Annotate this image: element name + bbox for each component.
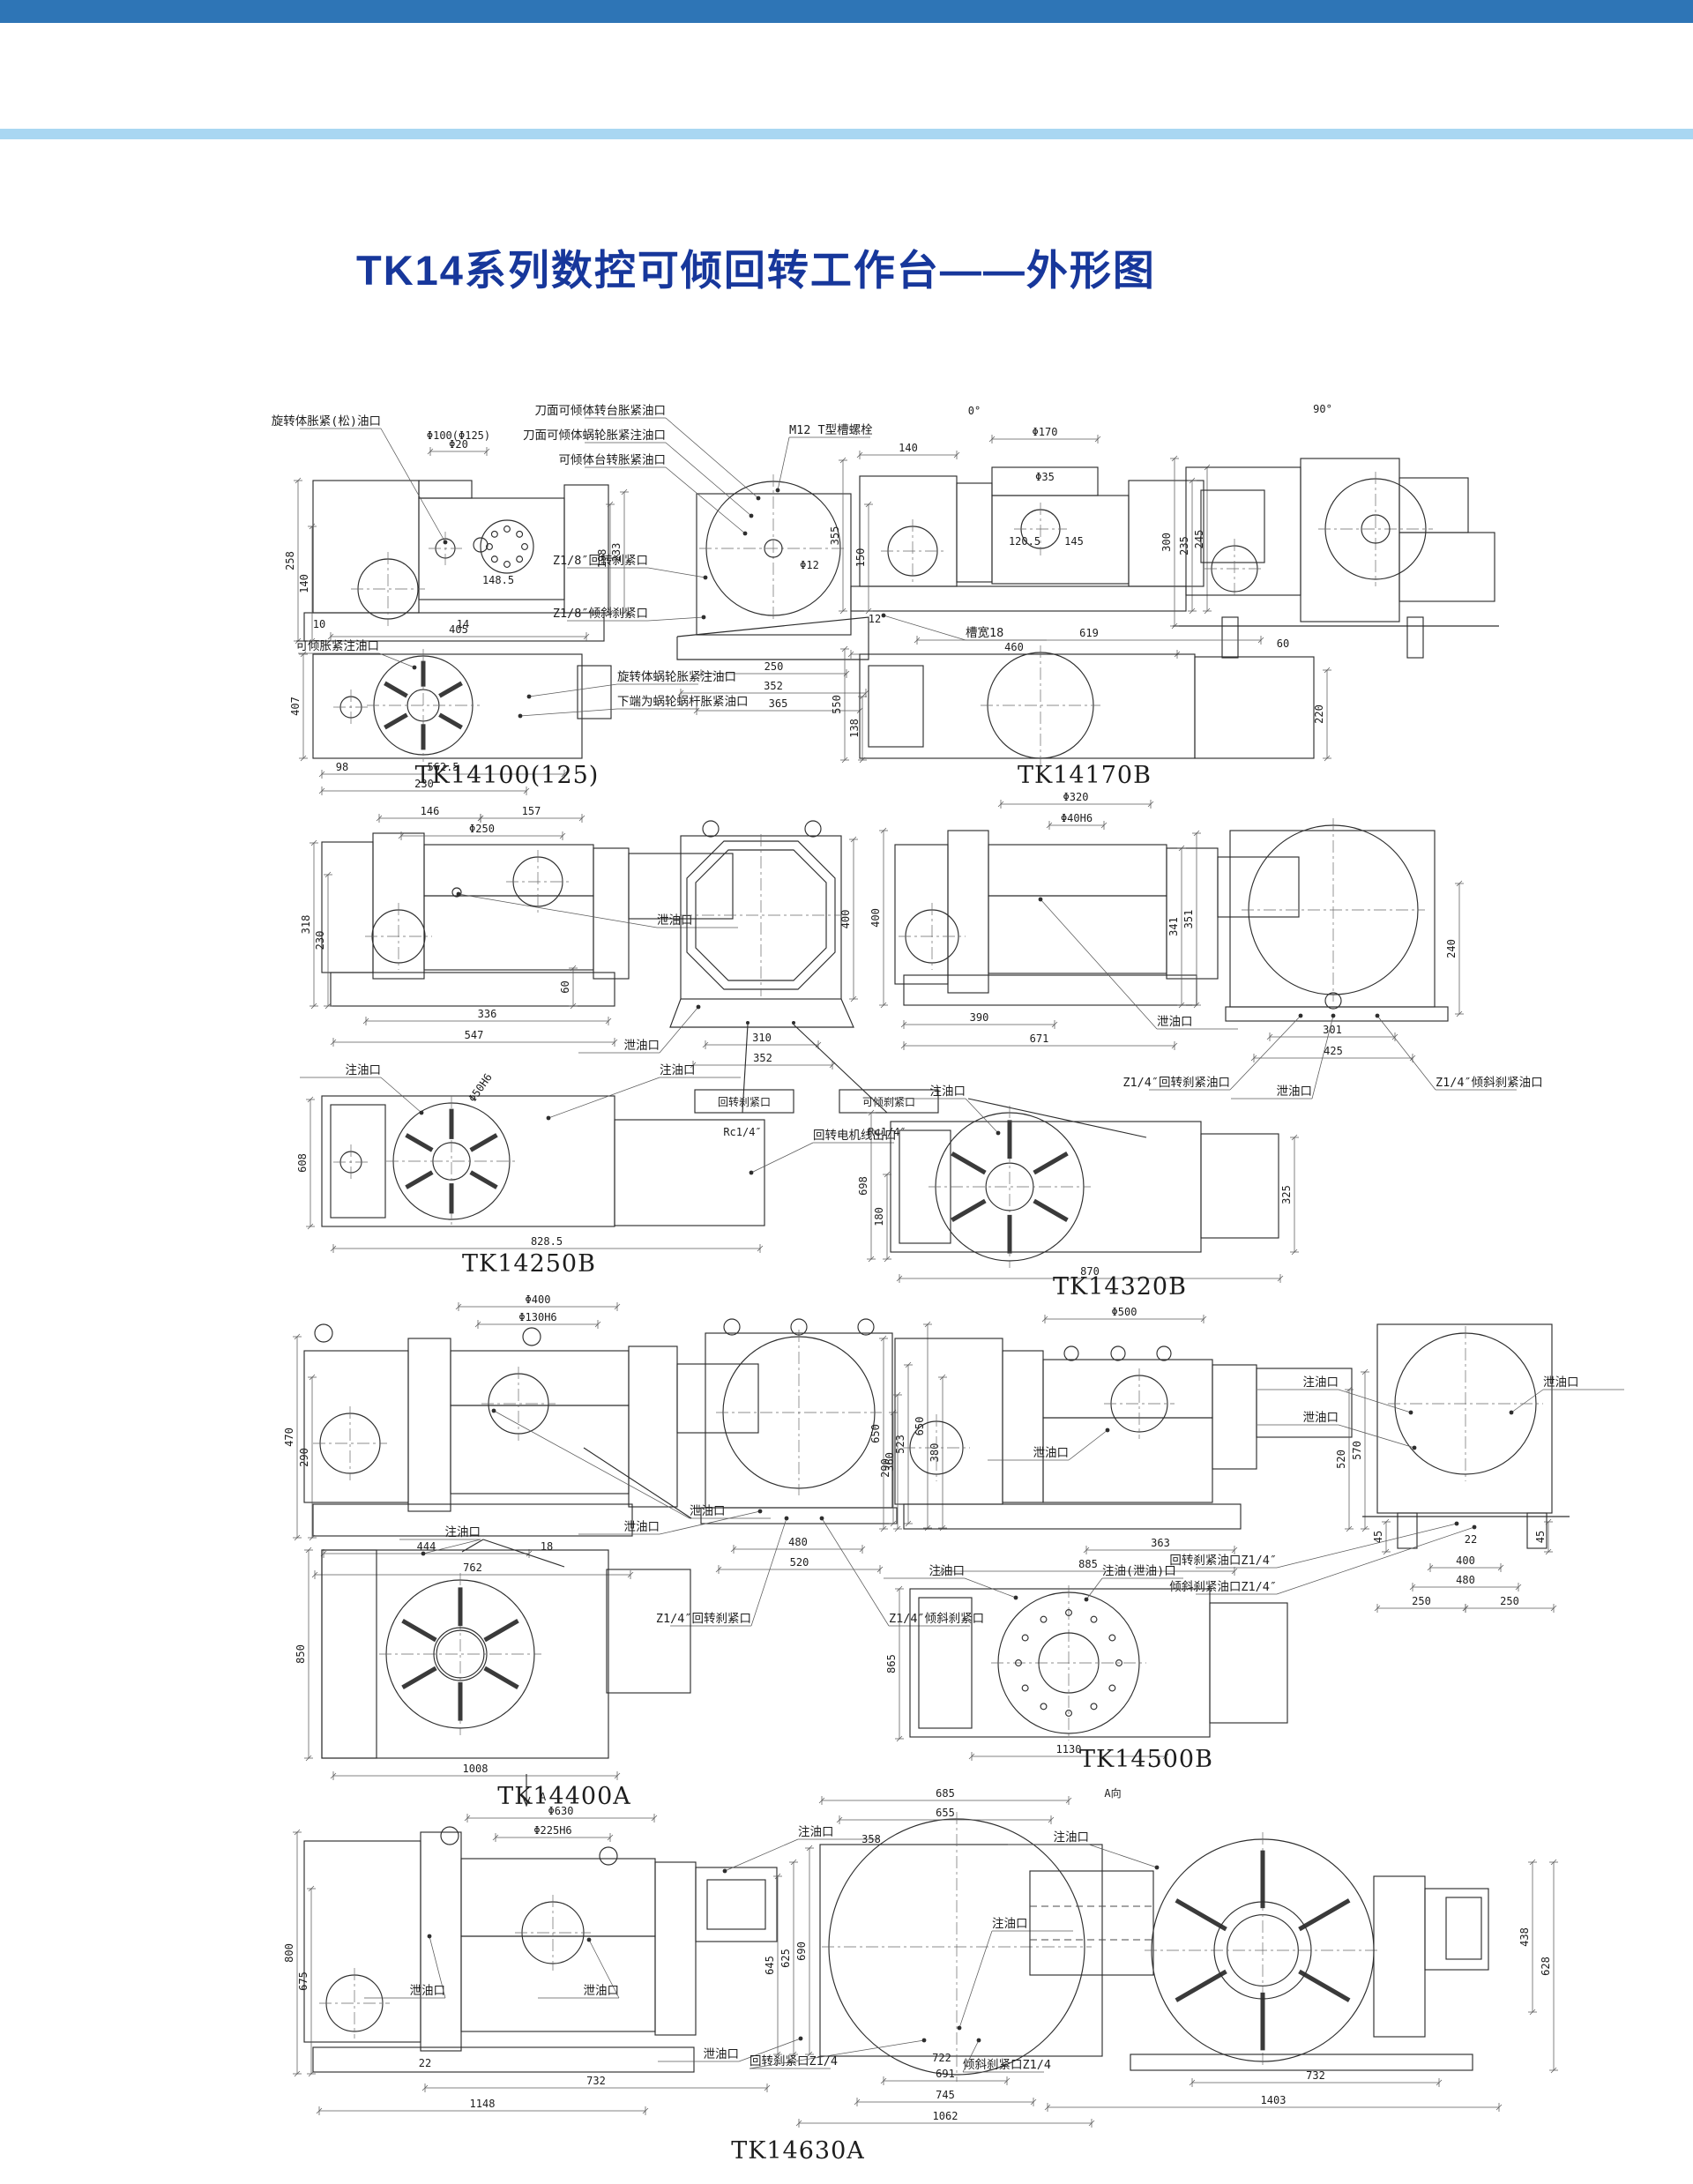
annotation-text: 90°: [1313, 403, 1332, 415]
dimension-text: 828.5: [531, 1235, 563, 1248]
dimension-text: 762: [463, 1562, 482, 1574]
part-outline: [322, 842, 373, 973]
callout-text: 注油(泄油)口: [1102, 1564, 1176, 1578]
technical-drawings-canvas: Φ100(Φ125)Φ20258140148.51982331040514旋转体…: [0, 0, 1693, 2184]
annotation-text: 18: [541, 1540, 553, 1553]
dimension-text: Φ130H6: [518, 1311, 556, 1323]
dimension-text: 645: [764, 1956, 776, 1975]
part-outline: [1407, 617, 1423, 658]
leader-line: [1277, 1524, 1457, 1568]
leader-dot: [492, 1409, 496, 1413]
leader-dot: [785, 1517, 789, 1521]
dimension-text: 352: [764, 680, 783, 692]
callout-text: 刀面可倾体转台胀紧油口: [535, 404, 667, 418]
dimension-text: 1062: [933, 2110, 958, 2122]
dimension-text: 650: [869, 1424, 882, 1443]
callout-text: 注油口: [445, 1525, 481, 1539]
leader-dot: [413, 666, 417, 670]
part-outline: [899, 1130, 951, 1243]
part-outline: [1446, 1897, 1481, 1959]
leader-dot: [757, 496, 761, 501]
leader-dot: [697, 1005, 701, 1010]
dimension-text: 547: [465, 1029, 484, 1041]
leader-line: [381, 1077, 421, 1113]
annotation-text: 98: [336, 761, 348, 773]
dimension-text: 675: [297, 1972, 310, 1991]
callout-text: 可倾体台转胀紧油口: [559, 453, 667, 467]
drawing-tk14500b: Φ500650360570520363885泄油口注油口泄油口泄油口454522…: [869, 1306, 1624, 1773]
dimension-text: 365: [769, 697, 788, 710]
part-outline: [1210, 1603, 1287, 1723]
leader-dot: [776, 488, 780, 493]
leader-dot: [1409, 1411, 1413, 1415]
leader-line: [548, 1077, 660, 1118]
part-outline: [313, 2047, 694, 2072]
part-circle: [600, 1847, 617, 1865]
part-outline: [1377, 1324, 1552, 1513]
drawing-tk14630a: AΦ630Φ225H6800675645625690注油口泄油口泄油口22732…: [283, 1774, 1558, 2165]
dimension-text: 480: [788, 1536, 808, 1548]
dimension-text: 380: [929, 1443, 941, 1463]
callout-text: 注油口: [930, 1085, 966, 1099]
part-line: [794, 1025, 887, 1113]
part-outline: [869, 666, 923, 747]
leader-dot: [420, 1111, 424, 1115]
drawing-tk14100: Φ100(Φ125)Φ20258140148.51982331040514旋转体…: [272, 404, 873, 795]
dimension-text: 650: [914, 1417, 926, 1436]
bolt-hole: [517, 531, 523, 537]
annotation-text: 可倾刹紧口: [862, 1096, 915, 1108]
dimension-text: 352: [753, 1052, 772, 1064]
model-label: TK14170B: [1018, 762, 1152, 789]
part-outline: [304, 1841, 421, 2042]
t-slot: [439, 715, 461, 728]
leader-dot: [421, 1552, 426, 1556]
callout-text: 泄油口: [1157, 1015, 1193, 1029]
bolt-hole: [1109, 1685, 1115, 1691]
leader-dot: [820, 1517, 824, 1521]
callout-text: 槽宽18: [966, 625, 1003, 640]
leader-dot: [587, 1938, 592, 1942]
dimension-text: Φ40H6: [1061, 812, 1093, 824]
leader-dot: [457, 892, 461, 897]
part-outline: [851, 586, 1186, 611]
part-outline: [593, 848, 629, 979]
part-circle: [724, 1319, 740, 1335]
leader-line: [725, 1839, 798, 1871]
dimension-text: 355: [829, 526, 841, 546]
dimension-text: 1403: [1261, 2094, 1287, 2106]
part-outline: [1399, 533, 1495, 601]
dimension-text: 1130: [1056, 1743, 1082, 1755]
part-outline: [1398, 1513, 1417, 1548]
bolt-hole: [1022, 1635, 1028, 1641]
callout-text: 泄油口: [1303, 1411, 1339, 1425]
dimension-text: Φ20: [449, 438, 468, 451]
leader-dot: [958, 2026, 962, 2031]
dimension-text: 360: [884, 1452, 896, 1472]
leader-dot: [996, 1131, 1001, 1136]
dimension-text: 400: [1456, 1554, 1475, 1567]
dimension-text: 157: [522, 805, 541, 817]
dimension-text: 180: [873, 1207, 885, 1226]
dimension-text: 390: [970, 1011, 989, 1024]
part-outline: [820, 1845, 1102, 2056]
part-outline: [1425, 1889, 1488, 1970]
annotation-text: Φ12: [800, 559, 819, 571]
annotation-text: 120.5: [1009, 535, 1040, 548]
leader-dot: [1413, 1446, 1417, 1450]
dimension-text: 235: [1178, 536, 1190, 555]
leader-line: [648, 617, 704, 621]
leader-line: [494, 1411, 690, 1518]
part-outline: [564, 485, 608, 613]
callout-text: 泄油口: [1277, 1085, 1313, 1099]
leader-dot: [799, 2037, 803, 2041]
dimension-text: 220: [1313, 704, 1325, 724]
leader-dot: [1510, 1411, 1514, 1415]
t-slot: [471, 1135, 497, 1150]
dimension-text: 520: [790, 1556, 809, 1569]
part-outline: [461, 1859, 655, 1936]
dimension-text: 698: [857, 1176, 869, 1196]
part-outline: [304, 1351, 408, 1502]
dimension-text: 60: [559, 980, 571, 993]
dimension-text: 625: [779, 1949, 792, 1968]
part-outline: [607, 1569, 690, 1693]
dimension-text: 550: [831, 695, 843, 714]
callout-text: 注油口: [929, 1564, 966, 1578]
leader-dot: [547, 1116, 551, 1121]
drawing-tk14170b: 0°140Φ170Φ35355150120.514523524512槽宽1846…: [829, 403, 1499, 789]
part-outline: [1212, 1365, 1257, 1469]
t-slot: [403, 1621, 436, 1640]
part-outline: [629, 1346, 677, 1507]
dimension-text: 250: [1500, 1595, 1519, 1607]
part-outline: [860, 654, 1195, 758]
leader-line: [660, 1007, 698, 1053]
part-outline: [696, 1867, 777, 1942]
callout-text: 可倾胀紧注油口: [296, 639, 380, 653]
dimension-text: 671: [1030, 1032, 1049, 1045]
part-outline: [948, 831, 988, 993]
leader-dot: [1331, 1014, 1336, 1018]
callout-text: 注油口: [992, 1917, 1028, 1931]
leader-line: [822, 1518, 889, 1626]
callout-text: 泄油口: [1543, 1375, 1579, 1390]
part-circle: [858, 1319, 874, 1335]
bolt-hole: [1091, 1616, 1097, 1622]
t-slot: [384, 715, 406, 728]
part-line: [584, 1448, 691, 1518]
part-outline: [331, 1105, 385, 1218]
part-outline: [1130, 2054, 1473, 2070]
part-outline: [677, 1364, 758, 1433]
leader-dot: [1299, 1014, 1303, 1018]
part-circle: [703, 821, 719, 837]
bolt-hole: [504, 562, 511, 568]
dimension-text: 732: [586, 2075, 606, 2087]
callout-text: 倾斜刹紧油口Z1/4″: [1169, 1580, 1277, 1594]
part-outline: [697, 494, 851, 635]
callout-text: 注油口: [798, 1825, 834, 1839]
part-outline: [988, 896, 1167, 973]
bolt-hole: [491, 531, 497, 537]
annotation-text: 回转刹紧口: [718, 1095, 771, 1108]
dimension-text: Φ500: [1112, 1306, 1137, 1318]
dimension-text: 523: [894, 1435, 906, 1454]
leader-line: [520, 709, 617, 716]
leader-dot: [428, 1934, 432, 1939]
dimension-text: Φ170: [1033, 426, 1058, 438]
part-outline: [313, 481, 419, 613]
dimension-text: 480: [1456, 1574, 1475, 1586]
t-slot: [952, 1201, 986, 1220]
dimension-text: 438: [1518, 1927, 1531, 1947]
part-outline: [1030, 1871, 1153, 1975]
callout-text: 旋转体胀紧(松)油口: [272, 414, 381, 429]
dimension-text: 245: [1193, 530, 1205, 549]
dimension-text: 885: [1078, 1558, 1098, 1570]
dimension-text: 250: [1412, 1595, 1431, 1607]
bolt-hole: [491, 556, 497, 563]
part-outline: [1201, 490, 1264, 563]
callout-text: 下端为蜗轮蜗杆胀紧油口: [617, 695, 749, 709]
annotation-text: 0°: [968, 405, 981, 417]
annotation-text: 145: [1064, 535, 1084, 548]
t-slot: [1176, 1900, 1227, 1929]
leader-line: [965, 1578, 1016, 1598]
dimension-text: 407: [289, 697, 302, 716]
leader-line: [959, 1931, 992, 2028]
leader-dot: [702, 615, 706, 620]
part-outline: [451, 1405, 629, 1494]
t-slot: [403, 1668, 436, 1688]
dimension-text: Φ225H6: [533, 1824, 571, 1837]
leader-dot: [1473, 1525, 1477, 1530]
part-outline: [408, 1338, 451, 1511]
model-label: TK14320B: [1053, 1273, 1187, 1301]
dimension-text: 655: [936, 1807, 955, 1819]
part-outline: [1222, 617, 1238, 658]
dimension-text: 146: [421, 805, 440, 817]
callout-text: 注油口: [660, 1063, 696, 1077]
part-outline: [322, 1550, 608, 1758]
part-circle: [315, 1324, 332, 1342]
part-outline: [1201, 1134, 1279, 1238]
dimension-text: 1008: [463, 1763, 489, 1775]
dimension-text: 140: [899, 442, 918, 454]
leader-dot: [750, 514, 754, 518]
part-outline: [707, 1880, 765, 1929]
part-outline: [1195, 657, 1314, 758]
leader-line: [459, 894, 657, 928]
leader-line: [1511, 1390, 1543, 1413]
callout-text: Z1/8″回转刹紧口: [553, 554, 648, 568]
dimension-text: 140: [298, 574, 310, 593]
model-label: TK14100(125): [415, 762, 600, 789]
part-outline: [701, 1508, 897, 1524]
model-label: TK14250B: [462, 1250, 596, 1278]
part-outline: [904, 1504, 1241, 1529]
leader-line: [751, 1143, 813, 1173]
part-outline: [895, 845, 948, 984]
t-slot: [1176, 1972, 1227, 2001]
t-slot: [952, 1153, 986, 1173]
part-outline: [957, 483, 992, 582]
part-outline: [655, 1862, 696, 2035]
part-outline: [424, 845, 593, 896]
leader-line: [381, 429, 445, 542]
dimension-text: 300: [1160, 533, 1173, 552]
part-outline: [313, 654, 582, 758]
part-outline: [461, 1936, 655, 2031]
leader-dot: [1039, 898, 1043, 902]
t-slot: [1034, 1153, 1068, 1173]
dimension-text: 520: [1335, 1450, 1347, 1469]
leader-dot: [1014, 1596, 1018, 1600]
dimension-text: 240: [1445, 939, 1458, 958]
dimension-text: 351: [1182, 910, 1195, 929]
leader-line: [529, 684, 617, 697]
t-slot: [1299, 1972, 1349, 2001]
part-outline: [1226, 1007, 1448, 1021]
t-slot: [384, 683, 406, 697]
t-slot: [485, 1621, 518, 1640]
part-outline: [1399, 478, 1468, 533]
leader-dot: [922, 2039, 927, 2043]
dimension-text: 425: [1324, 1045, 1343, 1057]
leader-line: [1089, 1845, 1157, 1867]
part-circle: [1064, 1346, 1078, 1360]
bolt-hole: [504, 526, 511, 533]
part-circle: [792, 1021, 795, 1025]
bolt-hole: [1109, 1635, 1115, 1641]
dimension-text: 138: [848, 719, 861, 738]
dimension-text: 45: [1372, 1531, 1384, 1543]
dimension-text: 732: [1306, 2069, 1325, 2082]
dimension-text: 150: [854, 548, 867, 568]
leader-dot: [518, 714, 523, 719]
part-outline: [1003, 1351, 1043, 1502]
dimension-text: 310: [752, 1032, 772, 1044]
callout-text: 刀面可倾体蜗轮胀紧注油口: [523, 429, 666, 443]
callout-text: 回转电机线出口: [813, 1129, 897, 1143]
t-slot: [485, 1668, 518, 1688]
callout-text: Z1/4″倾斜刹紧口: [889, 1612, 984, 1626]
leader-dot: [1085, 1598, 1089, 1602]
dimension-text: 400: [839, 910, 852, 929]
dimension-text: 341: [1167, 917, 1180, 936]
callout-text: 注油口: [346, 1063, 382, 1077]
leader-dot: [977, 2039, 981, 2043]
part-circle: [481, 520, 533, 573]
callout-text: Z1/4″回转刹紧油口: [1122, 1076, 1230, 1090]
dimension-text: 570: [1351, 1441, 1363, 1460]
part-polyline: [670, 999, 854, 1027]
part-circle: [441, 1827, 459, 1845]
dimension-text: 230: [314, 931, 326, 950]
dimension-text: 608: [296, 1153, 309, 1173]
bolt-hole: [1040, 1703, 1047, 1710]
callout-text: 倾斜刹紧口Z1/4: [963, 2058, 1051, 2072]
dimension-text: 619: [1079, 627, 1099, 639]
annotation-text: 22: [1465, 1533, 1477, 1546]
part-outline: [988, 845, 1167, 896]
part-line: [968, 1099, 1146, 1137]
dimension-text: Φ250: [469, 823, 495, 835]
annotation-text: A: [540, 1791, 547, 1803]
drawing-tk14400a: Φ400Φ130H647029044418762泄油口5232906503804…: [283, 1293, 984, 1810]
leader-dot: [882, 614, 886, 618]
dimension-text: 850: [295, 1644, 307, 1664]
leader-dot: [758, 1509, 763, 1514]
dimension-text: 318: [300, 915, 312, 935]
dimension-text: 470: [283, 1427, 295, 1447]
model-label: TK14500B: [1079, 1746, 1213, 1773]
part-circle: [746, 1021, 750, 1025]
callout-text: 注油口: [1054, 1830, 1090, 1845]
dimension-text: Φ400: [526, 1293, 551, 1306]
callout-text: 旋转体蜗轮胀紧注油口: [617, 670, 736, 684]
dimension-text: 1148: [470, 2098, 496, 2110]
dimension-text: 45: [1534, 1531, 1547, 1543]
annotation-text: 148.5: [482, 574, 514, 586]
annotation-text: 14: [457, 618, 469, 630]
leader-line: [1069, 1430, 1108, 1460]
part-outline: [451, 1351, 629, 1405]
leader-line: [1040, 899, 1157, 1029]
dimension-text: 258: [284, 551, 296, 570]
dimension-text: Φ320: [1063, 791, 1089, 803]
leader-line: [751, 1518, 787, 1626]
dimension-text: Φ630: [548, 1805, 574, 1817]
bolt-hole: [517, 556, 523, 563]
leader-line: [666, 443, 751, 516]
annotation-text: 10: [313, 618, 325, 630]
callout-text: 泄油口: [624, 1039, 660, 1053]
annotation-text: Rc1/4″: [723, 1126, 761, 1138]
part-outline: [1374, 1876, 1425, 2037]
leader-dot: [1155, 1866, 1160, 1870]
dimension-text: 400: [869, 908, 882, 928]
leader-dot: [704, 576, 708, 580]
callout-text: 泄油口: [584, 1984, 620, 1998]
part-outline: [895, 1338, 1003, 1504]
dimension-text: 336: [478, 1008, 497, 1020]
model-label: TK14630A: [731, 2137, 865, 2165]
bolt-hole: [1091, 1703, 1097, 1710]
callout-text: 泄油口: [704, 2047, 740, 2061]
part-polyline: [677, 617, 869, 660]
part-outline: [1043, 1360, 1212, 1418]
callout-text: Z1/4″倾斜刹紧油口: [1436, 1076, 1543, 1090]
dimension-text: 800: [283, 1943, 295, 1963]
dimension-text: 745: [936, 2089, 955, 2101]
leader-line: [666, 418, 758, 498]
callout-text: 泄油口: [1033, 1446, 1070, 1460]
dimension-text: 865: [885, 1654, 898, 1673]
callout-text: 泄油口: [410, 1984, 446, 1998]
annotation-text: 12: [869, 613, 881, 625]
annotation-text: 722: [932, 2052, 951, 2064]
callout-text: 注油口: [1303, 1375, 1339, 1390]
t-slot: [406, 1173, 433, 1188]
dimension-text: 690: [795, 1942, 808, 1961]
leader-dot: [1106, 1428, 1110, 1433]
annotation-text: 358: [861, 1833, 881, 1845]
leader-dot: [444, 540, 448, 545]
